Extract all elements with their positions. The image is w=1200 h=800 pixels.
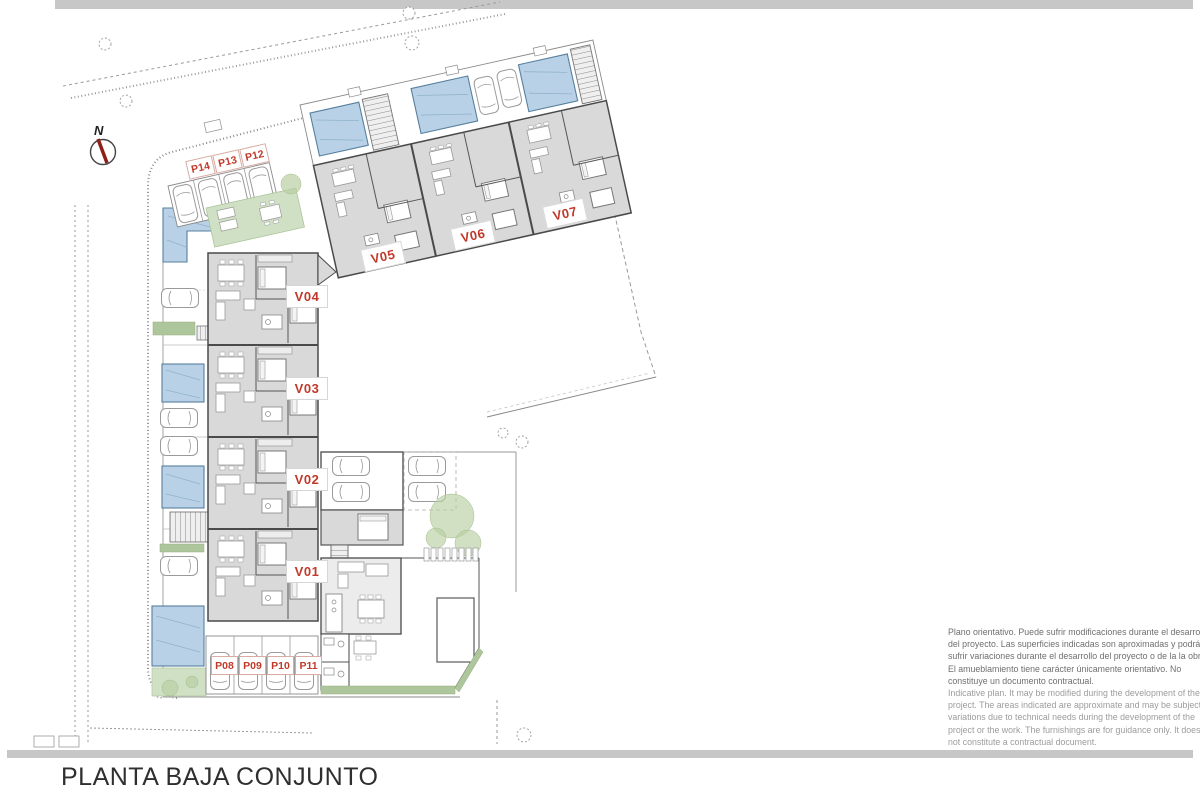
villa-label-v01: V01 (286, 560, 328, 583)
villa-label-v02: V02 (286, 468, 328, 491)
parking-label-p11: P11 (295, 656, 322, 675)
pool (162, 466, 204, 508)
disclaimer-block: Plano orientativo. Puede sufrir modifica… (948, 626, 1200, 748)
north-label: N (94, 123, 103, 138)
car (161, 437, 198, 456)
pool (162, 364, 204, 402)
car (161, 409, 198, 428)
bottom-border-bar (7, 750, 1193, 758)
car (409, 457, 446, 476)
disclaimer-en-line: variations due to technical needs during… (948, 711, 1200, 723)
parking-label-p09: P09 (239, 656, 266, 675)
car (333, 457, 370, 476)
clubhouse (321, 558, 401, 690)
lawn-pool (437, 598, 474, 662)
pool (152, 606, 204, 666)
disclaimer-es-line: constituye un documento contractual. (948, 675, 1200, 687)
disclaimer-en-line: Indicative plan. It may be modified duri… (948, 687, 1200, 699)
villa-label-v03: V03 (286, 377, 328, 400)
sheet-title: PLANTA BAJA CONJUNTO (61, 763, 378, 792)
parking-label-p08: P08 (211, 656, 238, 675)
north-arrow-icon (91, 139, 116, 165)
disclaimer-es-line: sufrir variaciones durante el desarrollo… (948, 650, 1200, 662)
disclaimer-en-line: project or the work. The furnishings are… (948, 724, 1200, 736)
car (161, 557, 198, 576)
pool (518, 54, 577, 112)
hedge (153, 322, 195, 335)
hedge (160, 544, 204, 552)
villa-label-v04: V04 (286, 285, 328, 308)
plan-sheet: V01 V02 V03 V04 V05 V06 V07 P08 P09 P10 … (0, 0, 1200, 800)
hedge (321, 686, 455, 694)
disclaimer-en-line: not constitute a contractual document. (948, 736, 1200, 748)
pergola (424, 548, 478, 561)
parking-label-p10: P10 (267, 656, 294, 675)
disclaimer-en-line: project. The areas indicated are approxi… (948, 699, 1200, 711)
car (162, 289, 199, 308)
disclaimer-es-line: El amueblamiento tiene carácter únicamen… (948, 663, 1200, 675)
disclaimer-es-line: del proyecto. Las superficies indicadas … (948, 638, 1200, 650)
tree (281, 174, 301, 194)
car (333, 483, 370, 502)
disclaimer-es-line: Plano orientativo. Puede sufrir modifica… (948, 626, 1200, 638)
